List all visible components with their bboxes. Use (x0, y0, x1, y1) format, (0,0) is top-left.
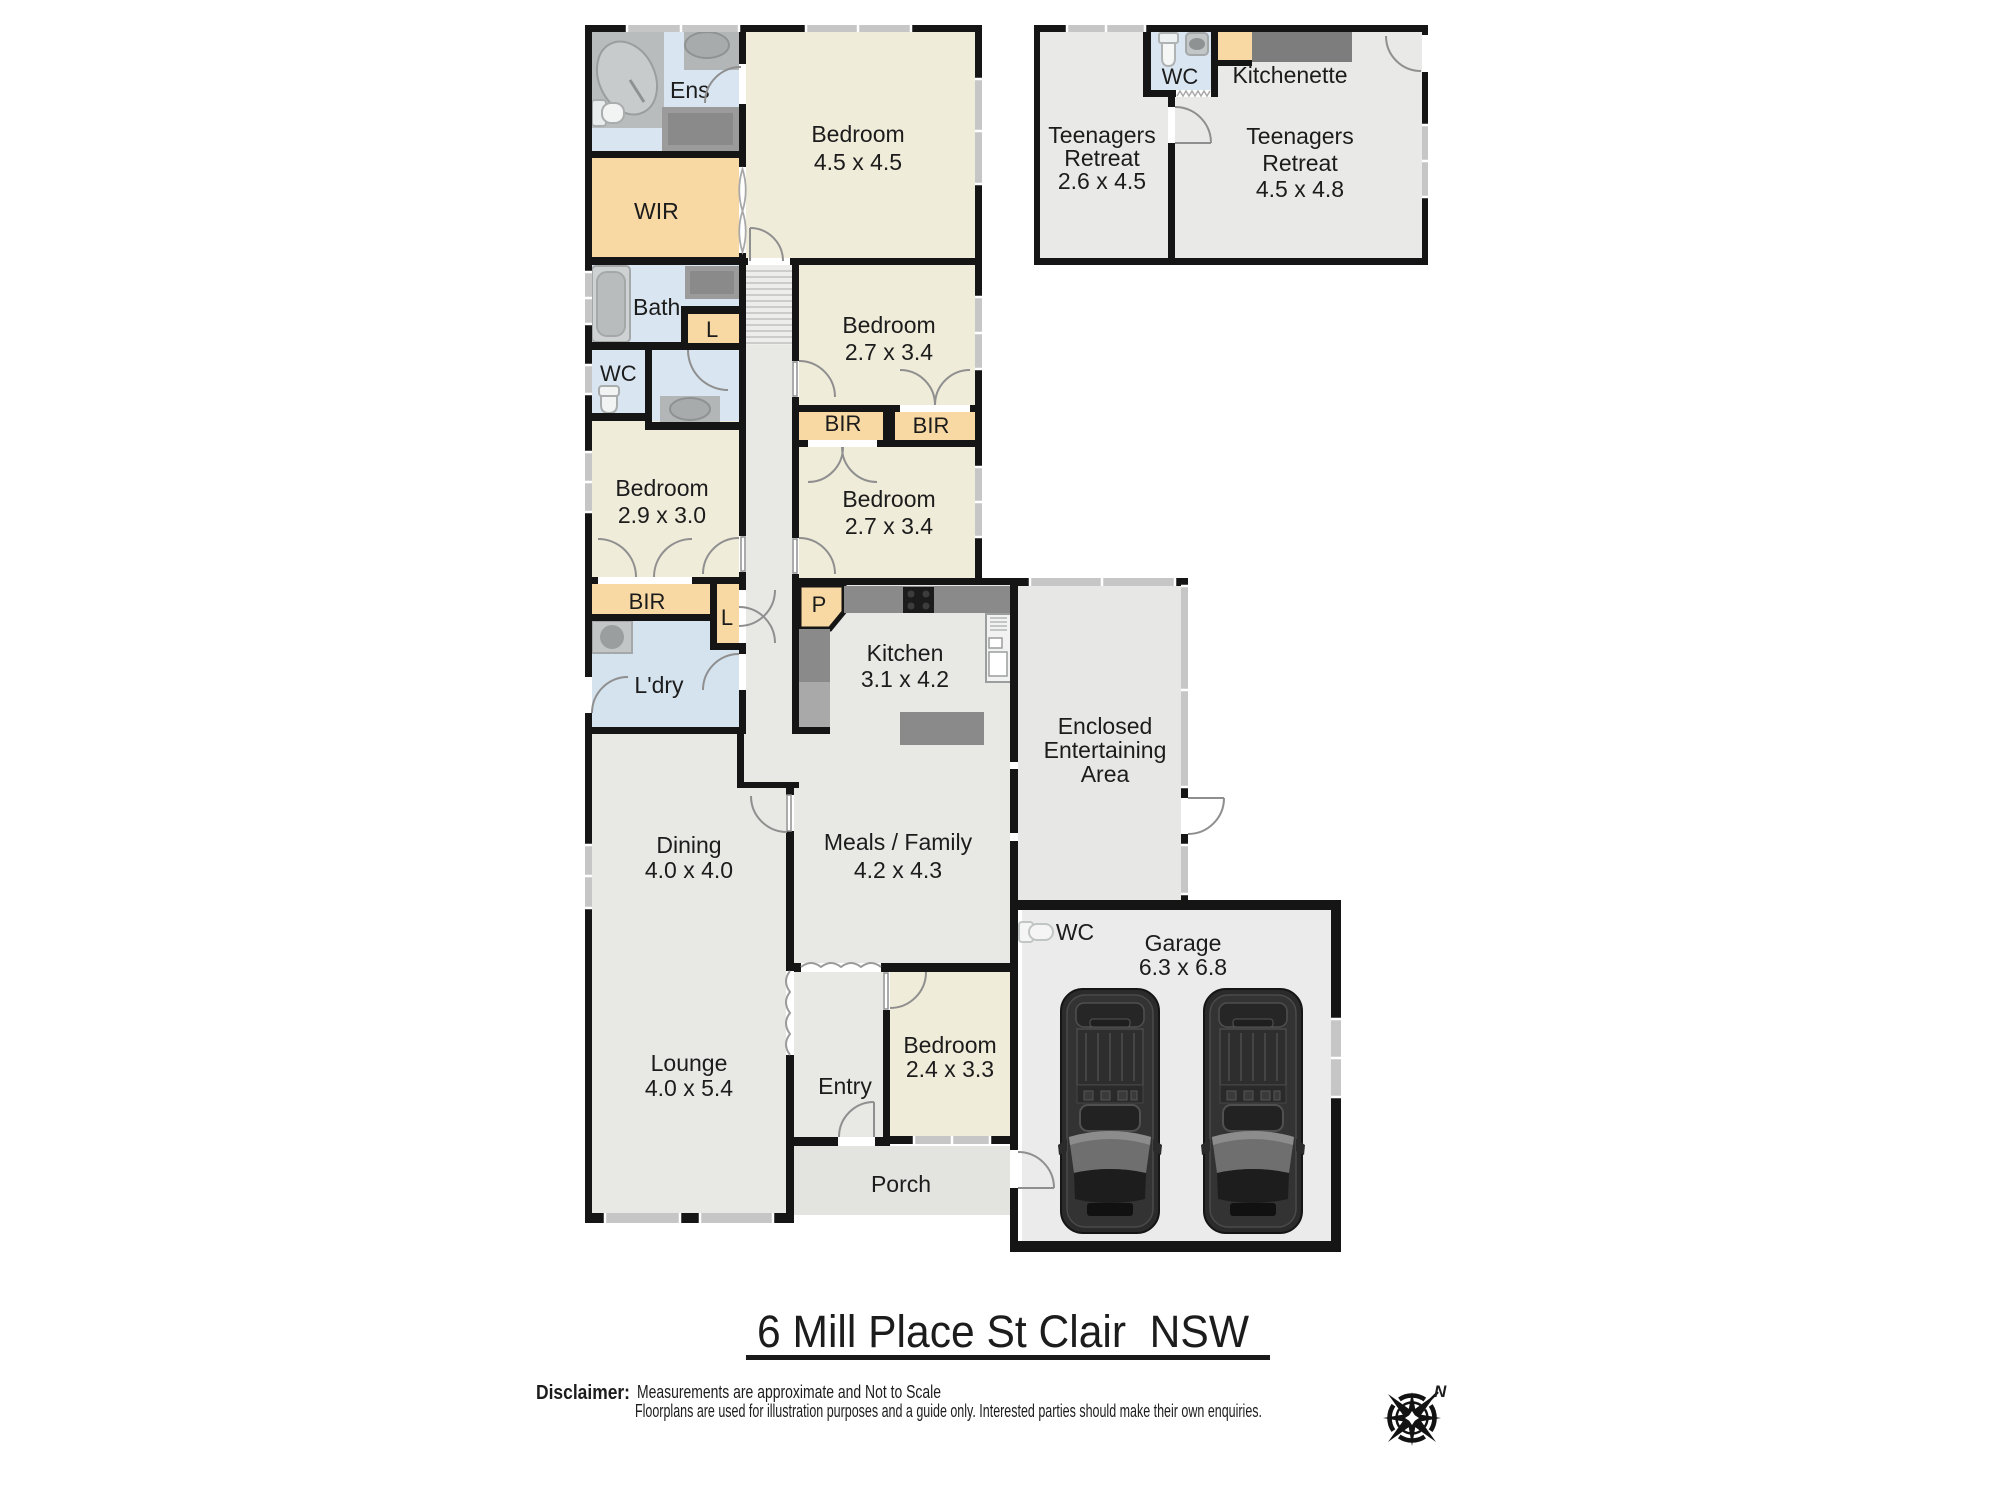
svg-text:4.2 x 4.3: 4.2 x 4.3 (854, 857, 942, 883)
svg-text:BIR: BIR (629, 589, 666, 614)
svg-text:4.0 x 5.4: 4.0 x 5.4 (645, 1075, 733, 1101)
svg-text:3.1 x 4.2: 3.1 x 4.2 (861, 666, 949, 692)
svg-text:Lounge: Lounge (651, 1050, 728, 1076)
svg-text:Bath: Bath (633, 294, 680, 320)
svg-text:Bedroom: Bedroom (903, 1032, 996, 1058)
svg-text:Bedroom: Bedroom (615, 475, 708, 501)
svg-text:Kitchen: Kitchen (867, 640, 944, 666)
svg-text:Enclosed: Enclosed (1058, 713, 1153, 739)
svg-text:Bedroom: Bedroom (842, 312, 935, 338)
svg-text:L: L (706, 317, 718, 342)
svg-text:Floorplans are used for illust: Floorplans are used for illustration pur… (635, 1401, 1262, 1421)
svg-text:WC: WC (600, 361, 637, 386)
svg-text:BIR: BIR (913, 413, 950, 438)
svg-text:L'dry: L'dry (634, 672, 684, 698)
svg-text:WC: WC (1056, 919, 1094, 945)
svg-text:Teenagers: Teenagers (1246, 123, 1353, 149)
svg-text:N: N (1434, 1382, 1447, 1401)
svg-text:Disclaimer:: Disclaimer: (536, 1382, 630, 1404)
svg-text:4.0 x 4.0: 4.0 x 4.0 (645, 857, 733, 883)
svg-text:Ens: Ens (670, 77, 710, 103)
svg-text:Entertaining: Entertaining (1044, 737, 1167, 763)
svg-text:BIR: BIR (825, 411, 862, 436)
svg-text:WC: WC (1162, 64, 1199, 89)
svg-text:4.5 x 4.8: 4.5 x 4.8 (1256, 176, 1344, 202)
svg-text:Meals / Family: Meals / Family (824, 829, 973, 855)
svg-text:6.3 x 6.8: 6.3 x 6.8 (1139, 954, 1227, 980)
svg-text:Area: Area (1081, 761, 1130, 787)
svg-text:Retreat: Retreat (1262, 150, 1338, 176)
svg-text:Garage: Garage (1145, 930, 1222, 956)
svg-text:2.6 x 4.5: 2.6 x 4.5 (1058, 168, 1146, 194)
svg-text:4.5 x 4.5: 4.5 x 4.5 (814, 149, 902, 175)
svg-text:L: L (721, 605, 733, 630)
svg-text:Bedroom: Bedroom (811, 121, 904, 147)
svg-text:Porch: Porch (871, 1171, 931, 1197)
svg-text:Measurements are approximate a: Measurements are approximate and Not to … (637, 1382, 941, 1402)
svg-text:6 Mill Place St Clair NSW: 6 Mill Place St Clair NSW (757, 1306, 1249, 1357)
svg-text:2.7 x 3.4: 2.7 x 3.4 (845, 513, 933, 539)
svg-text:Entry: Entry (818, 1073, 872, 1099)
svg-text:2.9 x 3.0: 2.9 x 3.0 (618, 502, 706, 528)
svg-text:P: P (812, 592, 827, 617)
svg-text:WIR: WIR (634, 198, 679, 224)
svg-text:2.4 x 3.3: 2.4 x 3.3 (906, 1056, 994, 1082)
svg-text:Bedroom: Bedroom (842, 486, 935, 512)
svg-text:2.7 x 3.4: 2.7 x 3.4 (845, 339, 933, 365)
svg-text:Dining: Dining (656, 832, 721, 858)
